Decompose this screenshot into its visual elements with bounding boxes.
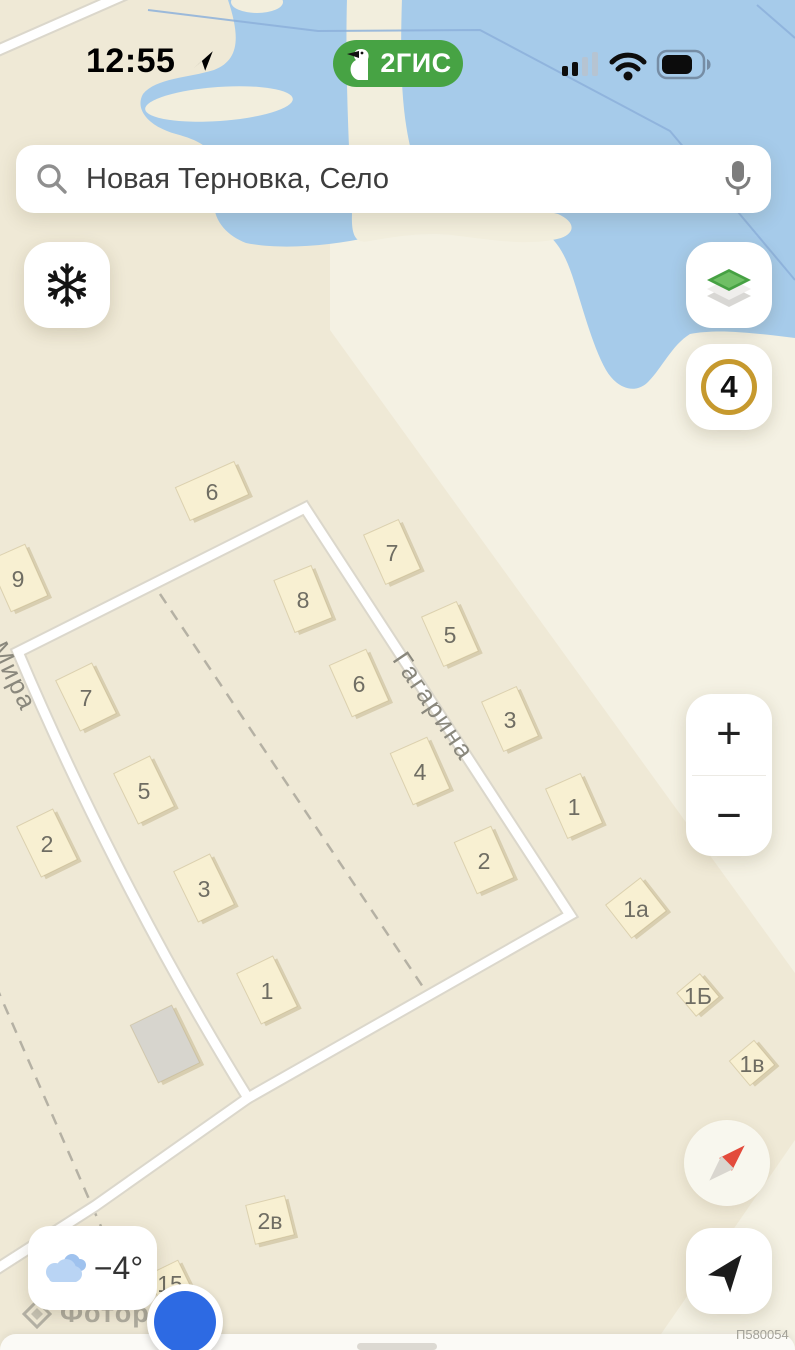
building-label: 2 (41, 831, 54, 857)
search-bar[interactable]: Новая Терновка, Село (16, 145, 771, 213)
bottom-sheet-handle[interactable] (357, 1343, 437, 1350)
map-app-screen: МираГагарина 697857634512231а11Б1в2в15 1… (0, 0, 795, 1350)
zoom-in-button[interactable]: + (686, 694, 772, 775)
temperature-value: −4° (94, 1250, 143, 1287)
photo-code-label: П580054 (736, 1327, 789, 1342)
building-label: 3 (198, 876, 211, 902)
building-label: 1 (261, 978, 274, 1004)
location-services-icon (190, 48, 216, 74)
building-label: 2 (478, 848, 491, 874)
zoom-control: + − (686, 694, 772, 856)
building-label: 2в (257, 1208, 282, 1234)
building-label: 6 (353, 671, 366, 697)
navigation-arrow-icon (703, 1245, 755, 1297)
compass-needle-icon (697, 1133, 757, 1193)
building-label: 7 (386, 540, 399, 566)
building-label: 1 (568, 794, 581, 820)
weather-widget[interactable]: −4° (28, 1226, 157, 1310)
microphone-icon[interactable] (723, 159, 753, 199)
battery-icon (658, 51, 711, 78)
building-label: 1в (739, 1051, 764, 1077)
building-label: 7 (80, 685, 93, 711)
compass-button[interactable] (684, 1120, 770, 1206)
zoom-out-button[interactable]: − (686, 776, 772, 857)
2gis-goose-icon (344, 47, 374, 81)
floor-number: 4 (720, 369, 737, 405)
building-label: 1а (623, 896, 649, 922)
building-label: 5 (138, 778, 151, 804)
floor-ring: 4 (701, 359, 757, 415)
search-input[interactable]: Новая Терновка, Село (86, 163, 723, 196)
building-label: 5 (444, 622, 457, 648)
signal-icon (562, 52, 598, 76)
floor-selector-button[interactable]: 4 (686, 344, 772, 430)
user-location-marker (147, 1284, 223, 1350)
2gis-brand-badge: 2ГИС (333, 40, 463, 87)
building-label: 3 (504, 707, 517, 733)
building-label: 1Б (684, 983, 712, 1009)
search-icon (34, 161, 70, 197)
my-location-button[interactable] (686, 1228, 772, 1314)
wifi-dot (624, 72, 633, 81)
building-label: 4 (414, 759, 427, 785)
status-icons (560, 44, 720, 84)
status-time: 12:55 (86, 42, 175, 81)
building-label: 8 (297, 587, 310, 613)
cloud-icon (42, 1250, 88, 1286)
snowflake-icon (43, 261, 91, 309)
wifi-icon (612, 55, 644, 69)
layers-icon (701, 257, 757, 313)
winter-mode-button[interactable] (24, 242, 110, 328)
user-location-dot (154, 1291, 216, 1350)
building-label: 9 (12, 566, 25, 592)
2gis-brand-label: 2ГИС (380, 48, 451, 79)
layers-button[interactable] (686, 242, 772, 328)
building-label: 6 (206, 479, 219, 505)
